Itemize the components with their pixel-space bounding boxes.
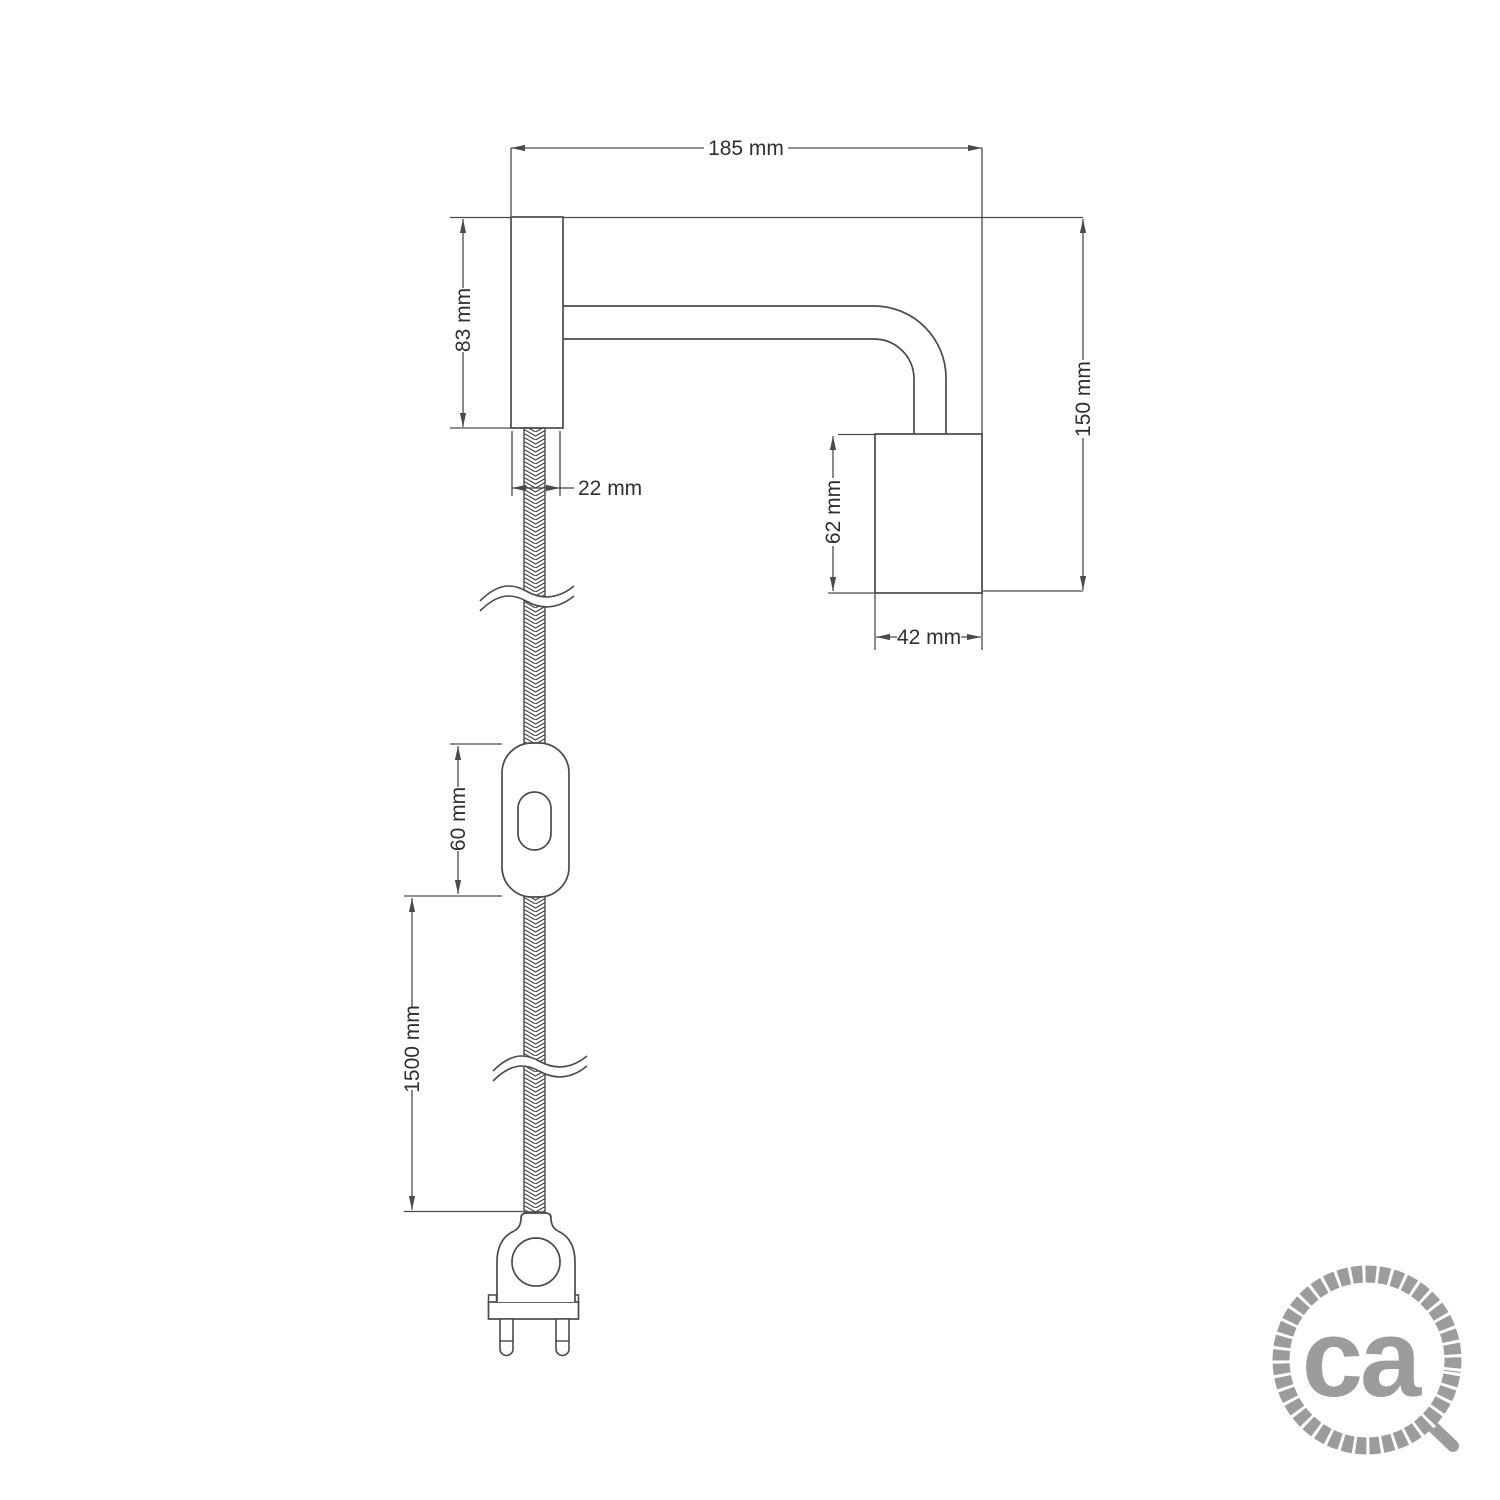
dimension-holder-height: 62 mm xyxy=(822,436,845,591)
tube-inner-edge xyxy=(563,339,914,434)
power-plug xyxy=(489,1213,579,1356)
creative-cables-logo: ca xyxy=(1270,1263,1464,1457)
logo-text: ca xyxy=(1302,1297,1422,1420)
diagram-canvas: 185 mm 83 mm 22 mm 62 mm 42 mm 150 mm 60… xyxy=(0,0,1500,1500)
plug-cable-hole xyxy=(512,1238,560,1286)
plug-base xyxy=(489,1302,579,1319)
dim-label-plate-depth: 22 mm xyxy=(578,477,642,500)
dim-label-total-height: 150 mm xyxy=(1072,361,1095,437)
dim-label-cable-length: 1500 mm xyxy=(401,1005,424,1093)
dimension-plate-height: 83 mm xyxy=(452,219,475,427)
extension-lines xyxy=(404,148,1083,1212)
plug-pin-right xyxy=(556,1319,569,1356)
dim-label-holder-width: 42 mm xyxy=(897,626,961,649)
extension-tube xyxy=(563,306,946,434)
inline-switch xyxy=(502,743,569,897)
dimension-total-height: 150 mm xyxy=(1072,219,1095,590)
dimension-holder-width: 42 mm xyxy=(876,626,981,649)
dim-label-plate-height: 83 mm xyxy=(452,288,475,352)
dim-label-total-width: 185 mm xyxy=(708,137,784,160)
lamp-holder xyxy=(875,434,982,593)
braided-cable-lower xyxy=(524,885,545,1212)
dim-label-switch-length: 60 mm xyxy=(447,787,470,851)
dimension-drawing: 185 mm 83 mm 22 mm 62 mm 42 mm 150 mm 60… xyxy=(0,0,1500,1500)
plug-pin-left xyxy=(500,1319,513,1356)
wall-mount-plate xyxy=(511,217,563,428)
dimension-cable-length: 1500 mm xyxy=(401,898,424,1210)
tube-outer-edge xyxy=(563,306,946,434)
dim-label-holder-height: 62 mm xyxy=(822,480,845,544)
switch-button xyxy=(518,792,551,850)
dimension-total-width: 185 mm xyxy=(511,137,982,160)
dimension-switch-length: 60 mm xyxy=(447,746,470,894)
